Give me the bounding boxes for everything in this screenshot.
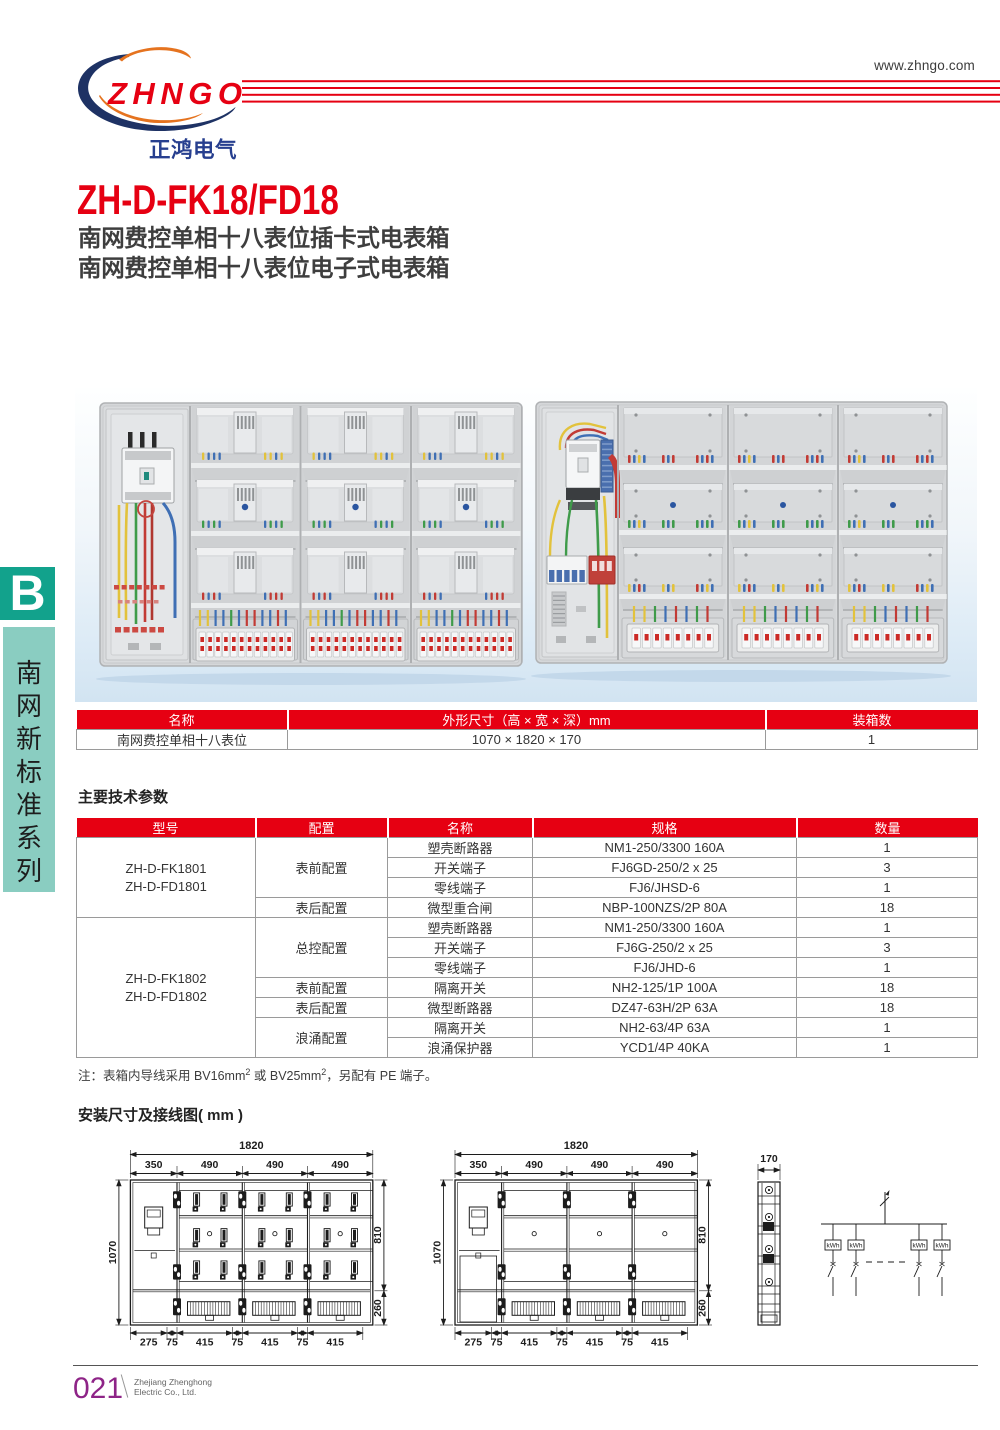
- svg-text:kWh: kWh: [913, 1243, 926, 1250]
- svg-text:75: 75: [231, 1337, 243, 1349]
- svg-text:75: 75: [297, 1337, 309, 1349]
- svg-text:810: 810: [372, 1226, 384, 1244]
- svg-text:490: 490: [201, 1159, 219, 1171]
- svg-text:1820: 1820: [239, 1140, 263, 1152]
- svg-text:415: 415: [261, 1337, 279, 1349]
- svg-text:415: 415: [326, 1337, 344, 1349]
- svg-text:kWh: kWh: [850, 1243, 863, 1250]
- svg-text:260: 260: [372, 1299, 384, 1317]
- svg-text:75: 75: [166, 1337, 178, 1349]
- svg-text:75: 75: [556, 1337, 568, 1349]
- svg-text:350: 350: [145, 1159, 163, 1171]
- svg-text:1820: 1820: [564, 1140, 588, 1152]
- svg-text:275: 275: [140, 1337, 158, 1349]
- svg-text:260: 260: [697, 1299, 709, 1317]
- svg-text:kWh: kWh: [827, 1243, 840, 1250]
- svg-text:350: 350: [470, 1159, 488, 1171]
- svg-text:415: 415: [586, 1337, 604, 1349]
- svg-text:415: 415: [651, 1337, 669, 1349]
- svg-text:415: 415: [521, 1337, 539, 1349]
- svg-text:kWh: kWh: [936, 1243, 949, 1250]
- svg-text:490: 490: [331, 1159, 349, 1171]
- svg-text:490: 490: [266, 1159, 284, 1171]
- svg-text:490: 490: [591, 1159, 609, 1171]
- svg-text:810: 810: [697, 1226, 709, 1244]
- svg-text:275: 275: [465, 1337, 483, 1349]
- svg-text:490: 490: [525, 1159, 543, 1171]
- svg-text:75: 75: [621, 1337, 633, 1349]
- svg-text:75: 75: [491, 1337, 503, 1349]
- svg-text:1070: 1070: [107, 1241, 119, 1265]
- svg-text:490: 490: [656, 1159, 674, 1171]
- svg-text:170: 170: [760, 1153, 778, 1165]
- svg-text:1070: 1070: [432, 1241, 444, 1265]
- svg-text:415: 415: [196, 1337, 214, 1349]
